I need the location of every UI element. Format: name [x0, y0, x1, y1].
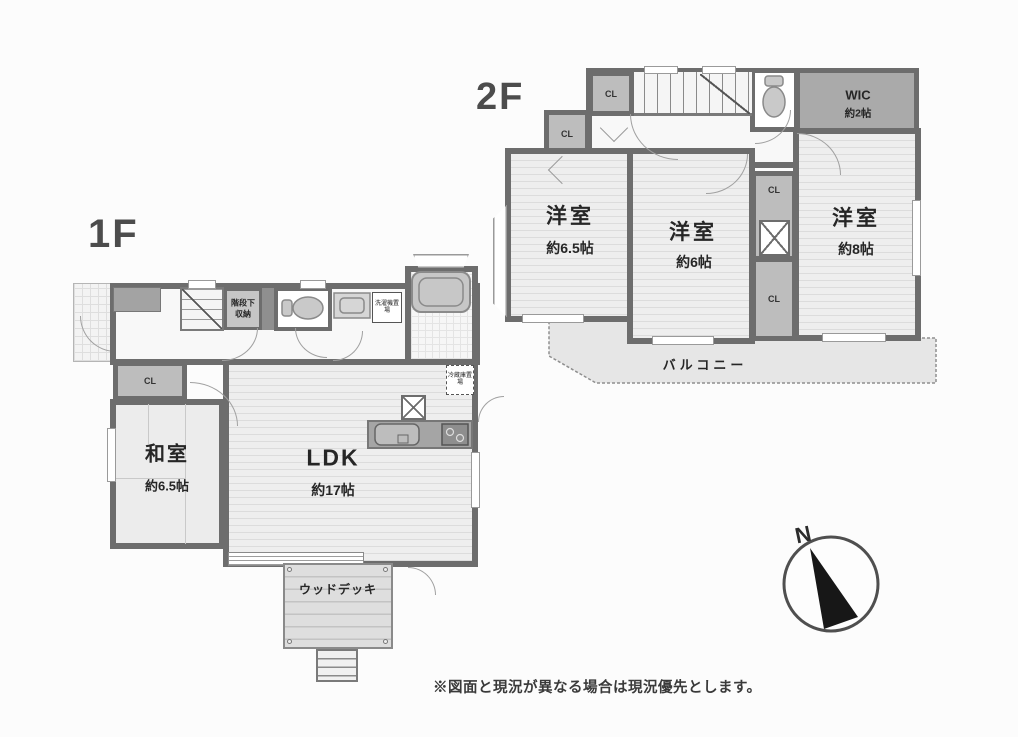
window	[300, 280, 326, 289]
closet-label: CL	[561, 129, 573, 139]
kitchen-xbox	[401, 395, 426, 420]
deck-corner	[287, 567, 292, 572]
fridge-space: 冷蔵庫置場	[446, 365, 474, 395]
north-label: N	[793, 521, 814, 549]
washitsu-size: 約6.5帖	[145, 476, 189, 495]
kitchen-sink-icon	[374, 423, 420, 446]
window	[188, 280, 216, 289]
bathtub-icon	[411, 271, 471, 313]
stove-icon	[441, 423, 469, 446]
stairs-break-line	[182, 289, 222, 329]
laundry-space: 洗濯機置場	[372, 292, 402, 323]
closet-label: CL	[605, 89, 617, 99]
tatami-line	[185, 404, 186, 544]
compass: N	[773, 512, 891, 638]
window	[522, 314, 584, 323]
bay-window	[493, 205, 507, 317]
under-stair-storage-label-2: 収納	[235, 309, 251, 320]
window	[652, 336, 714, 345]
closet-label: CL	[768, 185, 780, 195]
bedroom-west-name: 洋室	[546, 200, 594, 230]
back-door-arc	[478, 396, 504, 422]
wood-deck	[283, 563, 393, 649]
floor-2-label: 2F	[476, 76, 524, 119]
window	[471, 452, 480, 508]
bedroom-east-name: 洋室	[832, 202, 880, 232]
deck-door-arc	[408, 567, 436, 595]
ldk-size: 約17帖	[311, 480, 355, 500]
washitsu-name: 和室	[145, 438, 189, 467]
floor-1-label: 1F	[88, 212, 139, 257]
bedroom-west-size: 約6.5帖	[546, 238, 593, 258]
wall-block	[262, 288, 274, 330]
closet-label: CL	[768, 294, 780, 304]
deck-steps	[316, 649, 358, 682]
disclaimer-note: ※図面と現況が異なる場合は現況優先とします。	[433, 676, 762, 697]
bedroom-east-size: 約8帖	[838, 239, 874, 259]
deck-corner	[287, 639, 292, 644]
deck-corner	[383, 567, 388, 572]
window	[644, 66, 678, 74]
balcony-label: バルコニー	[663, 355, 748, 374]
toilet-icon	[281, 294, 327, 322]
floor-plan-canvas: 2F バルコニー WIC 約2帖 CL CL 洋室 約6.5帖 洋室 約6帖 洋…	[0, 0, 1018, 737]
bedroom-middle-size: 約6帖	[676, 252, 712, 272]
bath-window	[413, 254, 469, 268]
stairs-break-line	[700, 74, 750, 114]
window	[702, 66, 736, 74]
closet-label: CL	[144, 376, 156, 386]
shoe-cabinet	[113, 287, 161, 312]
deck-corner	[383, 639, 388, 644]
bedroom-middle-name: 洋室	[669, 216, 717, 246]
window	[107, 428, 116, 482]
vanity-icon	[333, 292, 371, 319]
wic-size: 約2帖	[845, 106, 872, 121]
ldk-name: LDK	[306, 445, 359, 472]
wood-deck-label: ウッドデッキ	[299, 581, 377, 598]
window	[912, 200, 921, 276]
pipe-space-xbox	[759, 220, 790, 256]
window	[822, 333, 886, 342]
under-stair-storage-label-1: 階段下	[231, 298, 255, 309]
wic-name: WIC	[845, 88, 870, 103]
